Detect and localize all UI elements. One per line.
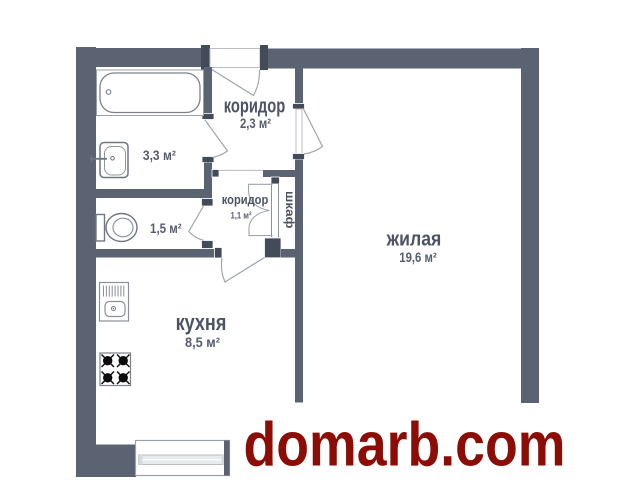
svg-text:1,1 м²: 1,1 м² — [231, 210, 252, 221]
svg-text:1,5 м²: 1,5 м² — [150, 221, 182, 236]
svg-text:3,3 м²: 3,3 м² — [143, 147, 176, 163]
svg-text:2,3 м²: 2,3 м² — [240, 116, 271, 131]
svg-text:кухня: кухня — [176, 310, 227, 335]
svg-text:19,6 м²: 19,6 м² — [399, 250, 437, 265]
svg-text:коридор: коридор — [224, 96, 286, 118]
svg-text:domarb.com: domarb.com — [244, 411, 566, 480]
svg-text:жилая: жилая — [386, 229, 442, 251]
svg-text:коридор: коридор — [222, 192, 269, 207]
svg-text:8,5 м²: 8,5 м² — [185, 334, 220, 350]
svg-text:шкаф: шкаф — [283, 191, 295, 229]
